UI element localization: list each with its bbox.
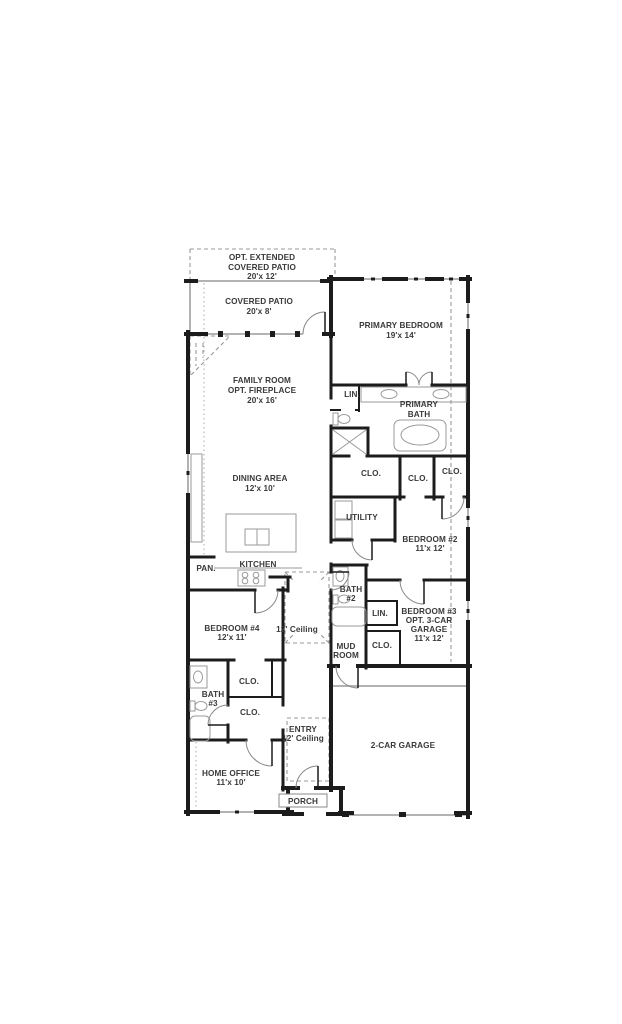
opt-fireplace-corner-dashed xyxy=(190,336,230,376)
label-bath2: BATH xyxy=(340,585,363,594)
label-utility: UTILITY xyxy=(346,513,378,522)
label-opt-extended-patio-dim: 20'x 12' xyxy=(247,272,277,281)
label-primary-bedroom: PRIMARY BEDROOM xyxy=(359,321,443,330)
label-bath2: #2 xyxy=(346,594,356,603)
label-mud-room: MUD xyxy=(337,642,356,651)
window-mullion xyxy=(467,609,470,613)
label-primary-bedroom-dim: 19'x 14' xyxy=(386,331,416,340)
vanity-counter xyxy=(190,666,207,688)
label-dining-area-dim: 12'x 10' xyxy=(245,484,275,493)
window-mullion xyxy=(449,278,453,281)
label-bedroom2: BEDROOM #2 xyxy=(402,535,457,544)
sink-basin xyxy=(381,390,397,399)
label-bedroom3: GARAGE xyxy=(411,625,448,634)
tub xyxy=(332,607,366,626)
label-closet: CLO. xyxy=(361,469,381,478)
label-porch: PORCH xyxy=(288,797,318,806)
patio-post xyxy=(218,331,223,337)
burner xyxy=(253,572,259,578)
tub xyxy=(190,716,210,741)
label-family-room: OPT. FIREPLACE xyxy=(228,386,297,395)
label-entry-ceiling: 12' Ceiling xyxy=(282,734,324,743)
label-kitchen: KITCHEN xyxy=(239,560,276,569)
window-mullion xyxy=(467,516,470,520)
toilet-tank xyxy=(333,595,338,604)
window-mullion xyxy=(414,278,418,281)
burner xyxy=(242,578,248,584)
label-family-room-dim: 20'x 16' xyxy=(247,396,277,405)
label-linen-primary: LIN. xyxy=(344,390,360,399)
dining-buffet-cabinet xyxy=(191,454,202,542)
patio-post xyxy=(295,331,300,337)
label-dining-area: DINING AREA xyxy=(233,474,288,483)
floor-plan-page: OPT. EXTENDED COVERED PATIO 20'x 12' COV… xyxy=(0,0,622,1024)
label-linen-hall: LIN. xyxy=(372,609,388,618)
primary-bath-tub xyxy=(394,420,446,451)
label-bath3: #3 xyxy=(208,699,218,708)
label-closet: CLO. xyxy=(239,677,259,686)
label-bedroom4: BEDROOM #4 xyxy=(204,624,259,633)
label-primary-bath: BATH xyxy=(408,410,431,419)
label-bedroom2-dim: 11'x 12' xyxy=(415,544,444,553)
patio-post xyxy=(245,331,250,337)
label-bedroom3: OPT. 3-CAR xyxy=(406,616,453,625)
patio-column-dotted-line xyxy=(196,283,204,808)
label-closet: CLO. xyxy=(442,467,462,476)
label-home-office-dim: 11'x 10' xyxy=(216,778,245,787)
label-pantry: PAN. xyxy=(196,564,215,573)
label-covered-patio: COVERED PATIO xyxy=(225,297,293,306)
label-closet: CLO. xyxy=(240,708,260,717)
primary-bath-toilet xyxy=(333,413,350,425)
window-mullion xyxy=(235,811,239,814)
label-covered-patio-dim: 20'x 8' xyxy=(246,307,271,316)
toilet-bowl xyxy=(338,415,350,424)
label-primary-bath: PRIMARY xyxy=(400,400,439,409)
label-hall-ceiling: 12' Ceiling xyxy=(276,625,318,634)
window-mullion xyxy=(467,314,470,318)
label-family-room: FAMILY ROOM xyxy=(233,376,291,385)
label-bedroom3: BEDROOM #3 xyxy=(401,607,456,616)
toilet-tank xyxy=(333,413,338,425)
label-mud-room: ROOM xyxy=(333,651,359,660)
toilet-bowl xyxy=(195,702,207,711)
window-mullion xyxy=(371,278,375,281)
patio-post xyxy=(270,331,275,337)
label-bedroom4-dim: 12'x 11' xyxy=(217,633,246,642)
label-bath3: BATH xyxy=(202,690,225,699)
bath3-fixtures xyxy=(190,666,210,741)
label-closet: CLO. xyxy=(408,474,428,483)
label-opt-extended-patio: COVERED PATIO xyxy=(228,263,296,272)
label-closet: CLO. xyxy=(372,641,392,650)
fixtures xyxy=(190,387,466,741)
tub-basin xyxy=(401,425,439,445)
burner xyxy=(253,578,259,584)
burner xyxy=(242,572,248,578)
garage-door-post xyxy=(399,812,406,817)
sink-basin xyxy=(433,390,449,399)
label-entry: ENTRY xyxy=(289,725,317,734)
floor-plan-drawing: OPT. EXTENDED COVERED PATIO 20'x 12' COV… xyxy=(0,0,622,1024)
range-body xyxy=(238,570,265,586)
kitchen-island xyxy=(226,514,296,552)
island-counter xyxy=(226,514,296,552)
toilet-tank xyxy=(190,701,195,711)
label-bedroom3-dim: 11'x 12' xyxy=(414,634,443,643)
label-home-office: HOME OFFICE xyxy=(202,769,260,778)
shower-x xyxy=(333,430,366,454)
label-garage: 2-CAR GARAGE xyxy=(371,741,436,750)
window-mullion xyxy=(187,471,190,475)
dryer xyxy=(335,520,352,538)
label-opt-extended-patio: OPT. EXTENDED xyxy=(229,253,295,262)
sink-basin xyxy=(194,671,203,683)
